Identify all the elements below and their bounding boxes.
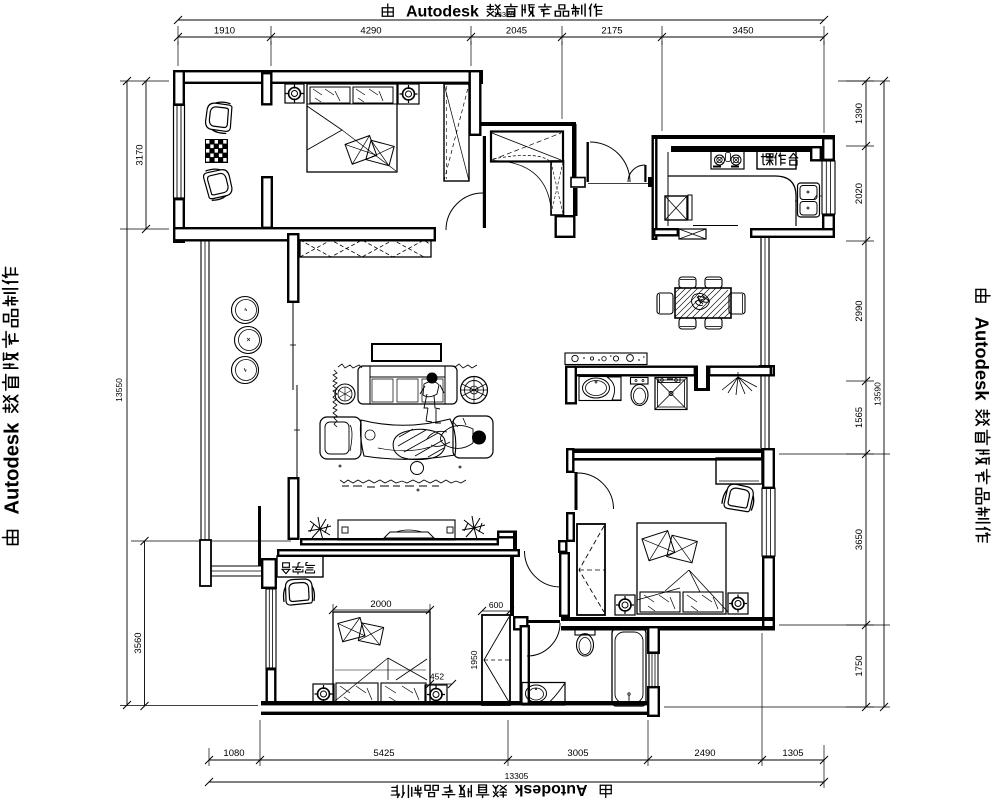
svg-text:3560: 3560 bbox=[133, 632, 144, 653]
svg-text:4290: 4290 bbox=[360, 26, 381, 37]
svg-text:1750: 1750 bbox=[854, 655, 865, 676]
svg-text:1305: 1305 bbox=[782, 748, 803, 759]
svg-text:13550: 13550 bbox=[114, 378, 124, 402]
svg-text:3650: 3650 bbox=[854, 529, 865, 550]
svg-text:600: 600 bbox=[489, 600, 503, 610]
svg-text:2490: 2490 bbox=[694, 748, 715, 759]
svg-text:13305: 13305 bbox=[505, 771, 529, 781]
svg-text:2990: 2990 bbox=[854, 300, 865, 321]
svg-text:1390: 1390 bbox=[854, 103, 865, 124]
svg-text:452: 452 bbox=[430, 672, 444, 682]
svg-text:2000: 2000 bbox=[370, 599, 391, 610]
svg-text:13590: 13590 bbox=[873, 382, 883, 406]
svg-text:1910: 1910 bbox=[214, 26, 235, 37]
svg-text:3170: 3170 bbox=[135, 144, 146, 165]
svg-text:2175: 2175 bbox=[601, 26, 622, 37]
svg-text:5425: 5425 bbox=[373, 748, 394, 759]
svg-text:1565: 1565 bbox=[854, 407, 865, 428]
svg-text:3450: 3450 bbox=[732, 26, 753, 37]
svg-text:3005: 3005 bbox=[567, 748, 588, 759]
svg-text:1950: 1950 bbox=[469, 650, 479, 669]
svg-text:2020: 2020 bbox=[854, 183, 865, 204]
svg-text:2045: 2045 bbox=[506, 26, 527, 37]
svg-text:1080: 1080 bbox=[223, 748, 244, 759]
